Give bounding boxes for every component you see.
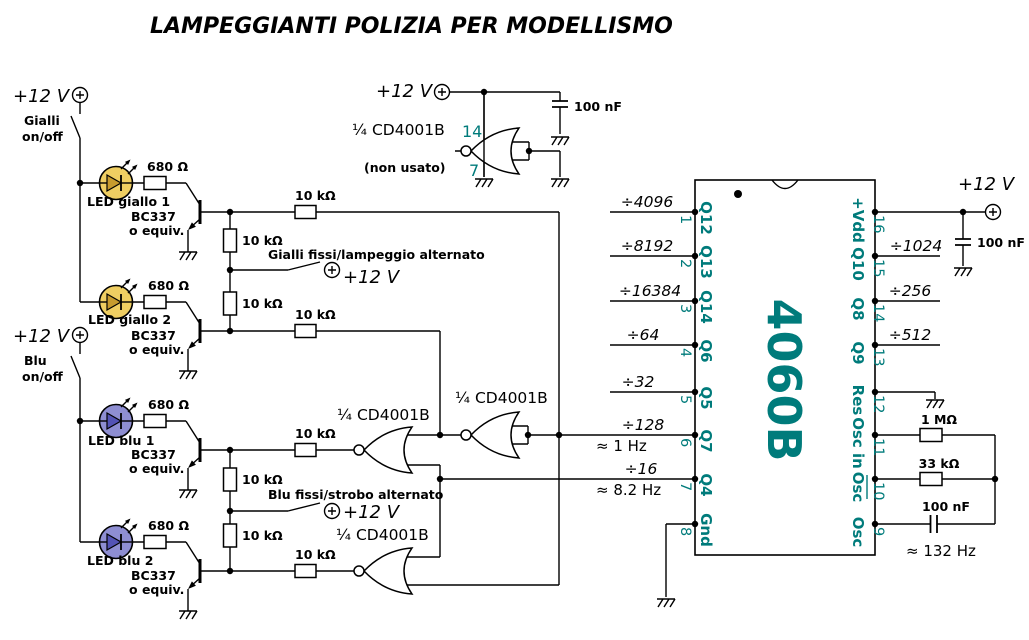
div-label-q10: ÷1024 — [890, 237, 942, 255]
gate-b-label: ¼ CD4001B — [455, 389, 548, 407]
div-label-q6: ÷64 — [627, 326, 660, 344]
pin-number-14: 14 — [870, 304, 886, 322]
gate-d-label: ¼ CD4001B — [336, 526, 429, 544]
plus-terminal-icon — [73, 328, 88, 343]
freq-label-1hz: ≈ 1 Hz — [596, 437, 647, 455]
led-blu-1 — [100, 398, 138, 438]
transistor-label: BC337 — [131, 328, 176, 343]
pin-number-9: 9 — [870, 527, 886, 536]
cd4001-pin14-label: 14 — [462, 122, 482, 141]
led-giallo1-label: LED giallo 1 — [87, 194, 170, 209]
ground-icon — [551, 179, 569, 187]
div-label-q8: ÷256 — [889, 282, 932, 300]
ic-name: 4060B — [757, 298, 811, 461]
resistor-10k-base1 — [295, 206, 316, 219]
transistor-label: BC337 — [131, 568, 176, 583]
ground-icon — [179, 371, 197, 379]
pin-number-2: 2 — [677, 259, 693, 268]
pin-number-11: 11 — [870, 438, 886, 456]
capacitor-label: 100 nF — [977, 235, 1025, 250]
plus-terminal-icon — [986, 205, 1001, 220]
led-blu2-label: LED blu 2 — [87, 553, 153, 568]
resistor-label: 10 kΩ — [242, 296, 283, 311]
pin-label-q7: Q7 — [697, 429, 715, 452]
transistor-label: BC337 — [131, 209, 176, 224]
pin-number-5: 5 — [677, 395, 693, 404]
supply-label: +12 V — [343, 502, 401, 523]
pin-label-q12: Q12 — [697, 201, 715, 235]
resistor-10k-base3 — [295, 444, 316, 457]
resistor-label: 680 Ω — [148, 518, 189, 533]
div-label-q12: ÷4096 — [621, 193, 674, 211]
pin-number-8: 8 — [677, 527, 693, 536]
plus-terminal-icon — [325, 263, 340, 278]
capacitor-label: 100 nF — [922, 499, 970, 514]
div-label-q5: ÷32 — [622, 373, 655, 391]
transistor-label2: o equiv. — [129, 461, 184, 476]
cd4001-pin7-label: 7 — [469, 161, 479, 180]
resistor-33k-label: 33 kΩ — [919, 456, 960, 471]
resistor-680-blu2 — [144, 536, 166, 549]
resistor-10k-chain3 — [224, 468, 237, 491]
resistor-label: 10 kΩ — [295, 426, 336, 441]
led-giallo2-label: LED giallo 2 — [88, 312, 171, 327]
resistor-10k-chain2 — [224, 292, 237, 315]
transistor-label2: o equiv. — [129, 342, 184, 357]
capacitor-label: 100 nF — [574, 99, 622, 114]
blu-switch-label2: on/off — [22, 369, 64, 384]
resistor-10k-chain1 — [224, 229, 237, 252]
schematic-canvas: LAMPEGGIANTI POLIZIA PER MODELLISMO +12 … — [0, 0, 1029, 636]
pin-number-6: 6 — [677, 438, 693, 447]
pin-label-q8: Q8 — [849, 297, 867, 320]
div-label-q7: ÷128 — [622, 416, 665, 434]
pin-label-q6: Q6 — [697, 339, 715, 362]
freq-label-8hz: ≈ 8.2 Hz — [596, 481, 661, 499]
resistor-1m-label: 1 MΩ — [921, 412, 957, 427]
gate-unused-note: (non usato) — [364, 160, 446, 175]
pin-number-10: 10 — [870, 482, 886, 500]
transistor-bc337-4 — [186, 542, 230, 611]
pin-number-4: 4 — [677, 348, 693, 357]
pin-label-q9: Q9 — [849, 341, 867, 364]
pin-label-res: Res — [849, 385, 867, 416]
transistor-label2: o equiv. — [129, 223, 184, 238]
resistor-680-giallo1 — [144, 177, 166, 190]
resistor-label: 10 kΩ — [242, 472, 283, 487]
capacitor-100n-right — [955, 239, 971, 245]
nor-gate-a — [354, 427, 412, 473]
ic-pin1-marker — [734, 190, 742, 198]
transistor-label2: o equiv. — [129, 582, 184, 597]
pin-label-gnd: Gnd — [697, 513, 715, 547]
blu-switch-label: Blu — [24, 353, 47, 368]
div-label-q9: ÷512 — [889, 326, 932, 344]
pin-number-16: 16 — [870, 215, 886, 233]
pin-label-q13: Q13 — [697, 245, 715, 279]
resistor-label: 10 kΩ — [242, 528, 283, 543]
supply-label: +12 V — [343, 267, 401, 288]
plus-terminal-icon — [325, 504, 340, 519]
ground-icon — [179, 611, 197, 619]
resistor-10k-base4 — [295, 565, 316, 578]
nor-gate-inverter — [461, 412, 519, 458]
pin-number-13: 13 — [870, 348, 886, 366]
resistor-label: 10 kΩ — [242, 233, 283, 248]
pin-label-q4: Q4 — [697, 473, 715, 496]
ground-icon — [926, 400, 944, 408]
plus-terminal-icon — [73, 88, 88, 103]
transistor-label: BC337 — [131, 447, 176, 462]
ground-icon — [551, 137, 569, 145]
freq-label-132hz: ≈ 132 Hz — [906, 542, 976, 560]
pin-label-q14: Q14 — [697, 290, 715, 324]
resistor-label: 10 kΩ — [295, 307, 336, 322]
resistor-label: 10 kΩ — [295, 188, 336, 203]
mode-switch-gialli-label: Gialli fissi/lampeggio alternato — [268, 247, 485, 262]
pin-label-q5: Q5 — [697, 386, 715, 409]
pin-number-3: 3 — [677, 304, 693, 313]
div-label-q13: ÷8192 — [621, 237, 673, 255]
mode-switch-blu-label: Blu fissi/strobo alternato — [268, 487, 444, 502]
led-blu1-label: LED blu 1 — [88, 433, 154, 448]
resistor-label: 680 Ω — [147, 159, 188, 174]
pin-label-osc-in: Osc in — [849, 417, 867, 469]
resistor-label: 680 Ω — [148, 397, 189, 412]
gialli-switch-label: Gialli — [24, 113, 60, 128]
pin-label-osc: Osc — [849, 517, 867, 548]
pin-number-15: 15 — [870, 259, 886, 277]
resistor-10k-base2 — [295, 325, 316, 338]
plus-terminal-icon — [435, 85, 450, 100]
gate-a-label: ¼ CD4001B — [337, 406, 430, 424]
capacitor-100n-osc — [931, 515, 938, 533]
supply-label: +12 V — [13, 86, 71, 107]
gate-unused-label: ¼ CD4001B — [352, 121, 445, 139]
resistor-680-blu1 — [144, 415, 166, 428]
supply-label: +12 V — [958, 174, 1016, 195]
ground-icon — [954, 268, 972, 276]
resistor-10k-chain4 — [224, 524, 237, 547]
nor-gate-d — [354, 548, 412, 594]
pin-number-1: 1 — [677, 215, 693, 224]
capacitor-100n-top — [552, 101, 568, 107]
pin-label-q10: Q10 — [849, 247, 867, 281]
page-title: LAMPEGGIANTI POLIZIA PER MODELLISMO — [150, 14, 673, 39]
div-label-q14: ÷16384 — [619, 282, 681, 300]
div-label-q4: ÷16 — [625, 460, 658, 478]
pin-number-7: 7 — [677, 482, 693, 491]
ground-icon — [179, 490, 197, 498]
supply-label: +12 V — [376, 81, 434, 102]
ground-icon — [475, 179, 493, 187]
pin-label-osc-inv: Osc — [849, 472, 867, 503]
supply-label: +12 V — [13, 326, 71, 347]
resistor-1m — [920, 429, 942, 442]
resistor-label: 10 kΩ — [295, 547, 336, 562]
resistor-label: 680 Ω — [148, 278, 189, 293]
gialli-switch-label2: on/off — [22, 129, 64, 144]
ground-icon — [657, 599, 675, 607]
pin-label-vdd: +Vdd — [849, 197, 867, 243]
ground-icon — [179, 252, 197, 260]
resistor-33k — [920, 473, 942, 486]
resistor-680-giallo2 — [144, 296, 166, 309]
pin-number-12: 12 — [870, 395, 886, 413]
